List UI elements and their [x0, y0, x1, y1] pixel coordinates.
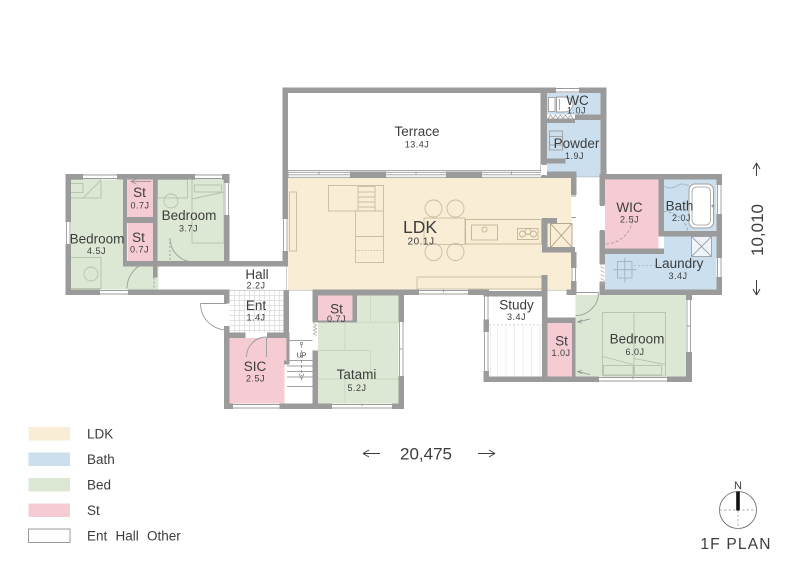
svg-text:1.9J: 1.9J [565, 151, 584, 161]
svg-text:5.2J: 5.2J [347, 383, 366, 393]
svg-text:UP: UP [297, 353, 307, 360]
svg-text:10,010: 10,010 [748, 204, 767, 256]
svg-text:3.7J: 3.7J [179, 224, 198, 234]
svg-text:Laundry: Laundry [655, 256, 704, 271]
svg-text:St: St [132, 230, 145, 245]
svg-text:2.0J: 2.0J [672, 213, 691, 223]
svg-text:1F PLAN: 1F PLAN [700, 536, 771, 553]
svg-text:4.5J: 4.5J [87, 246, 106, 256]
svg-text:Bedroom: Bedroom [70, 232, 125, 247]
svg-text:Ent: Ent [246, 298, 267, 313]
svg-text:Tatami: Tatami [337, 367, 377, 382]
svg-text:Terrace: Terrace [394, 124, 439, 139]
svg-text:3.4J: 3.4J [668, 271, 687, 281]
svg-text:0.7J: 0.7J [130, 245, 149, 255]
svg-text:20,475: 20,475 [400, 445, 452, 464]
svg-text:1.0J: 1.0J [551, 348, 570, 358]
svg-text:Powder: Powder [554, 136, 600, 151]
svg-text:2.2J: 2.2J [246, 281, 265, 291]
svg-text:2.5J: 2.5J [246, 374, 265, 384]
svg-text:3.4J: 3.4J [507, 312, 526, 322]
svg-text:LDK: LDK [87, 427, 113, 442]
svg-text:Bedroom: Bedroom [162, 208, 217, 223]
svg-text:LDK: LDK [403, 217, 437, 237]
svg-text:1.0J: 1.0J [567, 106, 586, 116]
svg-text:Bath: Bath [87, 452, 115, 467]
svg-text:N: N [734, 480, 742, 492]
svg-text:Bath: Bath [666, 199, 694, 214]
svg-text:St: St [133, 185, 146, 200]
svg-text:St: St [87, 503, 100, 518]
svg-text:Study: Study [499, 298, 534, 313]
svg-text:0.7J: 0.7J [130, 201, 149, 211]
svg-text:2.5J: 2.5J [620, 215, 639, 225]
svg-text:Ent Hall Other: Ent Hall Other [87, 529, 181, 544]
svg-text:St: St [555, 334, 568, 349]
svg-text:6.0J: 6.0J [625, 347, 644, 357]
svg-text:Bedroom: Bedroom [610, 332, 665, 347]
svg-text:20.1J: 20.1J [408, 237, 435, 248]
svg-text:Bed: Bed [87, 478, 111, 493]
svg-text:13.4J: 13.4J [405, 140, 430, 150]
svg-text:0.7J: 0.7J [327, 314, 346, 324]
svg-text:SIC: SIC [244, 359, 267, 374]
svg-text:1.4J: 1.4J [246, 313, 265, 323]
svg-text:WIC: WIC [616, 200, 642, 215]
